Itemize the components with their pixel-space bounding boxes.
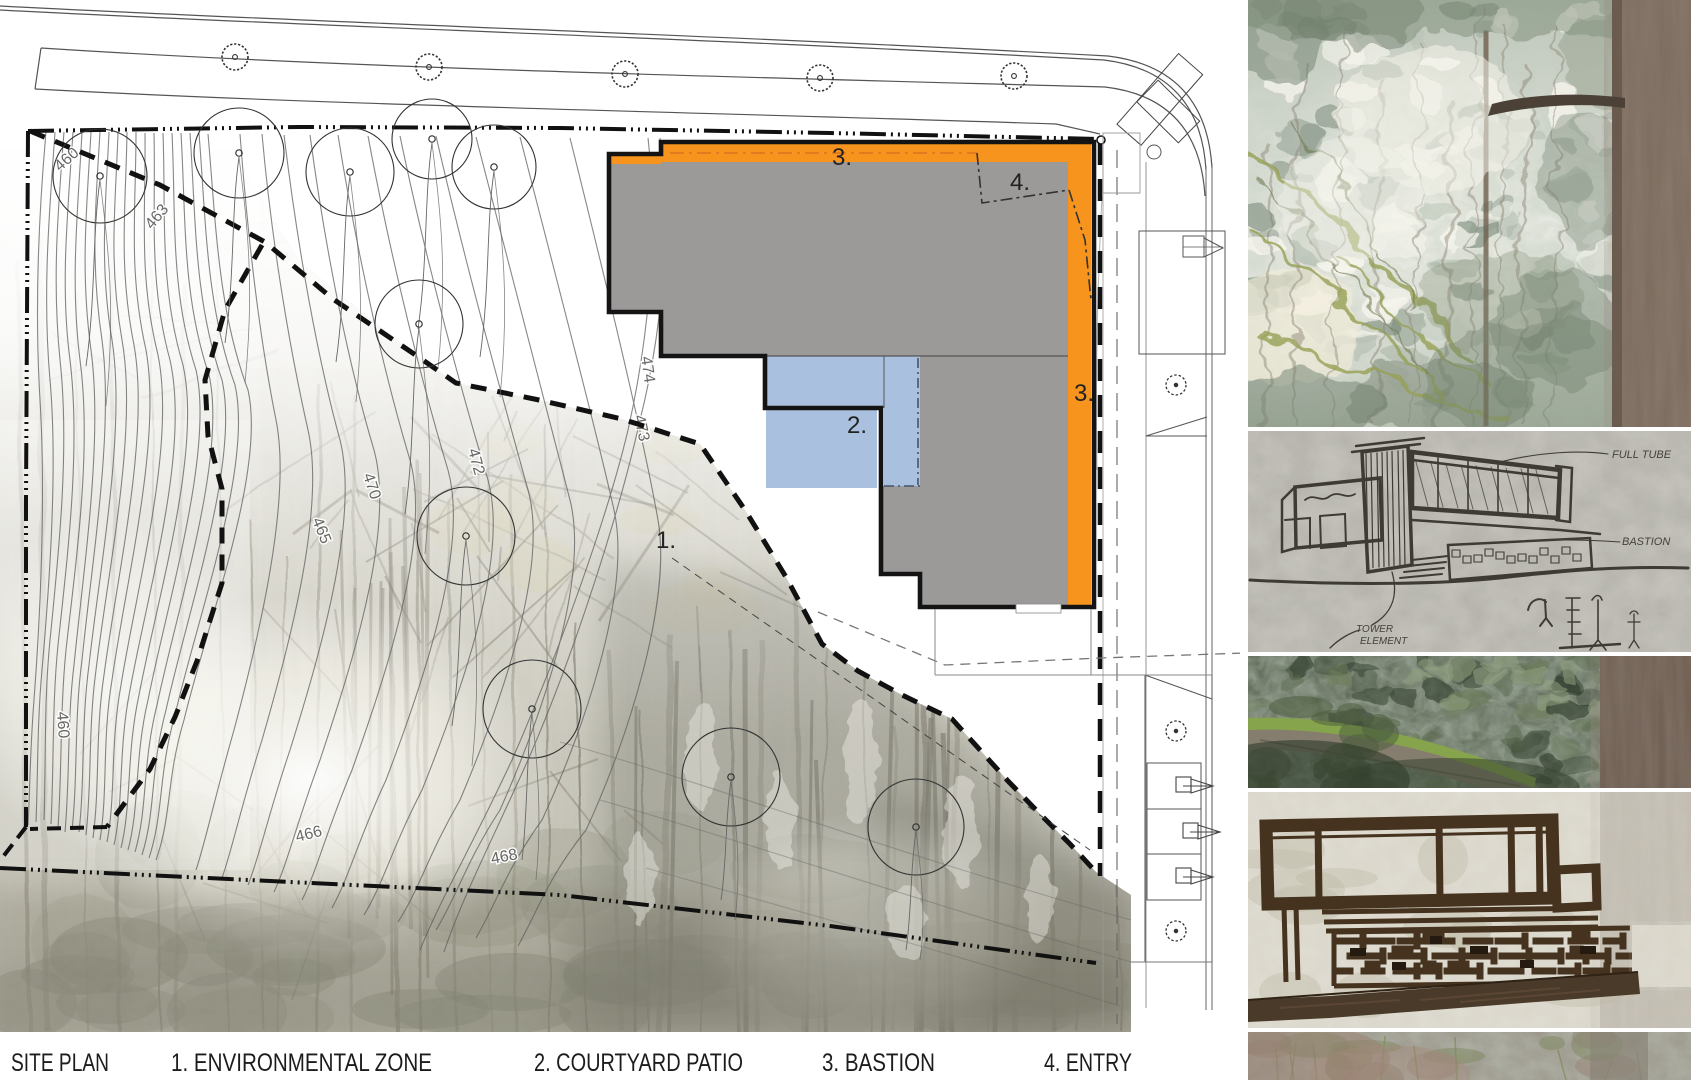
- svg-text:3.: 3.: [1074, 380, 1094, 407]
- svg-text:460: 460: [53, 711, 72, 739]
- svg-text:3.: 3.: [832, 144, 852, 171]
- svg-text:1.: 1.: [656, 527, 676, 554]
- svg-text:TOWER: TOWER: [1356, 624, 1393, 635]
- svg-text:2.: 2.: [847, 412, 867, 439]
- svg-text:4. ENTRY: 4. ENTRY: [1044, 1049, 1132, 1077]
- svg-text:3. BASTION: 3. BASTION: [822, 1049, 935, 1077]
- svg-text:FULL TUBE: FULL TUBE: [1612, 449, 1672, 461]
- svg-text:1. ENVIRONMENTAL ZONE: 1. ENVIRONMENTAL ZONE: [171, 1049, 432, 1077]
- svg-text:4.: 4.: [1010, 169, 1030, 196]
- svg-text:2. COURTYARD PATIO: 2. COURTYARD PATIO: [534, 1049, 743, 1077]
- svg-text:ELEMENT: ELEMENT: [1360, 636, 1408, 647]
- svg-text:SITE PLAN: SITE PLAN: [11, 1049, 109, 1077]
- svg-text:BASTION: BASTION: [1622, 536, 1670, 548]
